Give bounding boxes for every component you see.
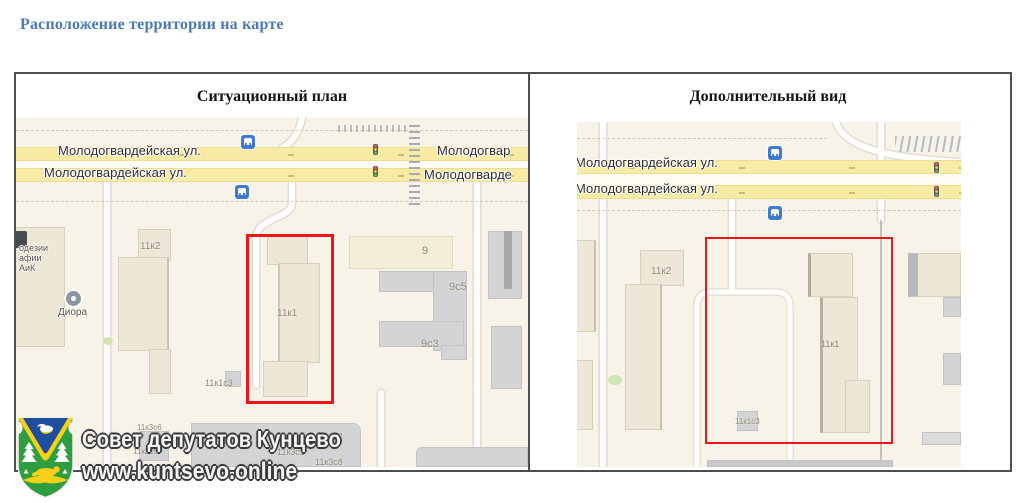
building-11k2 xyxy=(625,284,662,430)
bldg-label: 9с5 xyxy=(449,281,467,293)
building xyxy=(908,253,961,297)
panel-title-additional: Дополнительный вид xyxy=(530,88,1006,106)
street-label: Молодогвардейская ул. xyxy=(577,155,718,170)
building xyxy=(577,240,596,332)
bush xyxy=(608,375,622,385)
kuntsevo-coat-of-arms xyxy=(15,416,76,500)
table-divider xyxy=(528,74,530,470)
street-label: Молодогвардейская ул. xyxy=(44,165,187,180)
map-image-additional: Молодогвардейская ул.Молодогвардейская у… xyxy=(577,122,961,467)
panel-title-situational: Ситуационный план xyxy=(16,88,528,106)
street-label: Молодогварде xyxy=(424,167,512,182)
building xyxy=(416,447,528,467)
tram-dashed-line xyxy=(16,130,528,131)
watermark-org-name: Совет депутатов Кунцево xyxy=(82,426,341,453)
bldg-label: 11к2 xyxy=(651,266,671,277)
bldg-label: 11к1с3 xyxy=(205,378,233,388)
bldg-label: 11к2 xyxy=(140,241,160,252)
building xyxy=(943,297,961,317)
street-label: Молодогвардейская ул. xyxy=(577,181,718,196)
bush xyxy=(103,337,113,345)
traffic-light-icon xyxy=(934,186,939,197)
bus-stop-icon xyxy=(768,146,782,160)
building-9 xyxy=(349,236,453,269)
crosswalk-hatch xyxy=(338,125,410,132)
traffic-light-icon xyxy=(373,144,378,155)
poi-dot-icon xyxy=(66,291,81,306)
poi-label: одезии xyxy=(19,243,48,253)
bldg-label: 9с3 xyxy=(421,338,439,350)
bus-stop-icon xyxy=(241,135,255,149)
building-11k2 xyxy=(149,349,171,394)
poi-label: АиК xyxy=(19,263,35,273)
street-label: Молодогвар xyxy=(437,143,510,158)
building xyxy=(707,460,893,467)
bldg-label: 9 xyxy=(422,245,428,257)
street-label: Молодогвардейская ул. xyxy=(58,143,201,158)
map-comparison-table: Ситуационный план Дополнительный вид xyxy=(14,72,1012,472)
bus-stop-icon xyxy=(235,185,249,199)
tram-dashed-line xyxy=(16,201,528,202)
traffic-light-icon xyxy=(373,166,378,177)
building xyxy=(504,231,512,289)
poi-label: Диора xyxy=(58,307,87,318)
building xyxy=(943,353,961,385)
building-9s3 xyxy=(441,345,467,360)
building-11k2 xyxy=(118,257,169,351)
watermark-site-url: www.kuntsevo.online xyxy=(82,458,297,486)
building xyxy=(577,360,593,430)
territory-highlight-box xyxy=(246,234,334,404)
bldg-label: 11к1с3 xyxy=(735,417,760,426)
bldg-label: 11к3с8 xyxy=(315,457,343,467)
poi-label: афии xyxy=(19,253,41,263)
bldg-label: 11к1 xyxy=(821,339,839,349)
building xyxy=(491,326,522,389)
page-title: Расположение территории на карте xyxy=(20,16,284,34)
territory-highlight-box xyxy=(705,237,893,444)
traffic-light-icon xyxy=(934,162,939,173)
building xyxy=(922,432,961,445)
bus-stop-icon xyxy=(768,206,782,220)
map-image-situational: Молодогвардейская ул.Молодогвардейская у… xyxy=(16,117,528,467)
crosswalk-hatch xyxy=(895,136,961,152)
tram-dashed-line xyxy=(577,138,827,139)
bldg-label: 11к1 xyxy=(277,308,297,319)
crosswalk-ladder xyxy=(409,125,420,205)
